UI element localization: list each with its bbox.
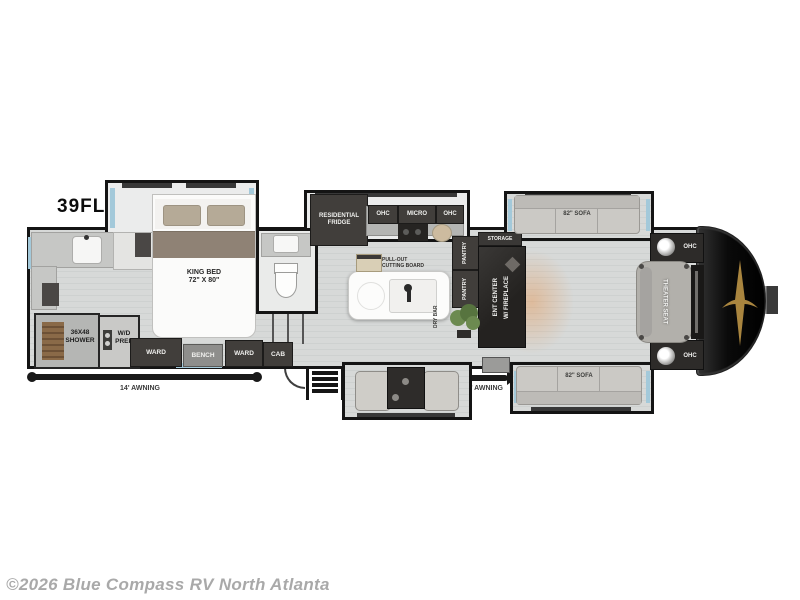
- dinette-slideout: [342, 362, 472, 420]
- wardrobe-cabinet: WARD: [225, 340, 263, 367]
- mid-bathroom: [256, 228, 318, 314]
- awning-left-label: 14' AWNING: [100, 385, 180, 393]
- bench-label: BENCH: [191, 352, 214, 360]
- sofa: 82" SOFA: [514, 195, 640, 234]
- pantry-cabinet: PANTRY: [452, 236, 479, 270]
- ward-label: WARD: [234, 350, 254, 358]
- entry-steps: [306, 369, 344, 400]
- stairs-rail: [302, 310, 304, 344]
- pantry-label: PANTRY: [462, 278, 469, 300]
- accent-lamp-icon: [657, 347, 675, 365]
- theater-seat-label: THEATER SEAT: [660, 279, 667, 324]
- micro-label: MICRO: [407, 211, 427, 218]
- pantry-cabinet: PANTRY: [452, 270, 479, 308]
- dry-bar-label: DRY BAR: [433, 300, 439, 334]
- overhead-cabinet: OHC: [368, 205, 398, 224]
- bed-blanket: [153, 231, 255, 258]
- fridge-label: RESIDENTIAL FRIDGE: [319, 213, 359, 227]
- entry-platform-front: [482, 357, 510, 373]
- island-prep-circle: [357, 282, 385, 310]
- stairs-rail: [272, 310, 274, 344]
- bed-pillow: [207, 205, 245, 226]
- cab-label: CAB: [271, 351, 285, 359]
- cooktop: [398, 224, 428, 241]
- decor-diamond: [505, 257, 521, 273]
- accent-lamp-icon: [657, 238, 675, 256]
- king-bed-label: KING BED 72" X 80": [164, 269, 244, 286]
- sofa-label: 82" SOFA: [537, 211, 617, 218]
- shower-label: 36X48 SHOWER: [62, 329, 98, 345]
- bed-pillow: [163, 205, 201, 226]
- cutting-board-icon: [356, 254, 382, 272]
- ohc-label: OHC: [376, 211, 389, 218]
- brand-wing-emblem-icon: [720, 258, 760, 348]
- theater-seat: THEATER SEAT: [636, 261, 692, 343]
- cutting-board-label: PULL-OUT CUTTING BOARD: [382, 257, 432, 270]
- window-slide-right: [646, 199, 650, 231]
- storage-cabinet: STORAGE: [478, 232, 522, 246]
- stairs-rail: [287, 310, 289, 344]
- bath-vanity-seat: [42, 283, 59, 306]
- entry-door-swing: [284, 368, 305, 389]
- dinette-table: [387, 367, 425, 409]
- shower: 36X48 SHOWER: [34, 313, 100, 369]
- nightstand: [135, 233, 151, 257]
- entertainment-center: ENT CENTER W/ FIREPLACE: [478, 246, 526, 348]
- overhead-cabinet: OHC: [436, 205, 464, 224]
- bath-sink: [273, 235, 299, 253]
- slide-wall-segment: [122, 183, 172, 188]
- ward-label: WARD: [146, 349, 166, 357]
- awning-end-cap: [27, 372, 37, 382]
- fireplace-tv: [691, 265, 704, 339]
- slide-wall-segment: [186, 183, 236, 188]
- pantry-label: PANTRY: [462, 242, 469, 264]
- cabinet: CAB: [263, 342, 293, 367]
- kitchen-round-sink: [432, 224, 452, 242]
- bench-seat: BENCH: [183, 344, 223, 367]
- slide-wall-segment: [531, 407, 631, 411]
- ent-center-label: W/ FIREPLACE: [504, 276, 511, 319]
- overhead-cabinet-front: OHC: [650, 233, 704, 263]
- microwave: MICRO: [398, 205, 436, 224]
- floorplan-page: 39FL 14' AWNING 14' AWNING: [0, 0, 800, 600]
- toilet-bowl: [275, 272, 297, 298]
- plant-pot: [457, 330, 471, 338]
- floorplan-model-title: 39FL: [57, 196, 105, 218]
- island-sink-basin: [389, 279, 437, 313]
- bath-sink: [72, 236, 102, 264]
- plant: [450, 304, 480, 340]
- ohc-label: OHC: [443, 211, 456, 218]
- sofa: 82" SOFA: [516, 366, 642, 405]
- window-slide-right: [646, 371, 650, 403]
- dinette-chair: [355, 371, 391, 411]
- ent-center-label: ENT CENTER: [493, 278, 500, 316]
- window-slide-left: [110, 188, 115, 228]
- overhead-cabinet-front: OHC: [650, 340, 704, 370]
- king-bed: KING BED 72" X 80": [152, 194, 256, 338]
- awning-bar-left: [32, 374, 258, 380]
- sofa-label: 82" SOFA: [539, 373, 619, 380]
- wardrobe-cabinet: WARD: [130, 338, 182, 367]
- watermark-copyright: ©2026 Blue Compass RV North Atlanta: [6, 575, 330, 595]
- ohc-label: OHC: [679, 244, 701, 251]
- washer-icon: [103, 330, 112, 350]
- storage-label: STORAGE: [488, 236, 513, 242]
- dinette-chair: [423, 371, 459, 411]
- ohc-label: OHC: [679, 353, 701, 360]
- slide-wall-segment: [357, 413, 455, 417]
- awning-end-cap: [252, 372, 262, 382]
- window-slide-left: [508, 199, 512, 231]
- residential-fridge: RESIDENTIAL FRIDGE: [310, 194, 368, 246]
- shower-bench: [42, 322, 64, 360]
